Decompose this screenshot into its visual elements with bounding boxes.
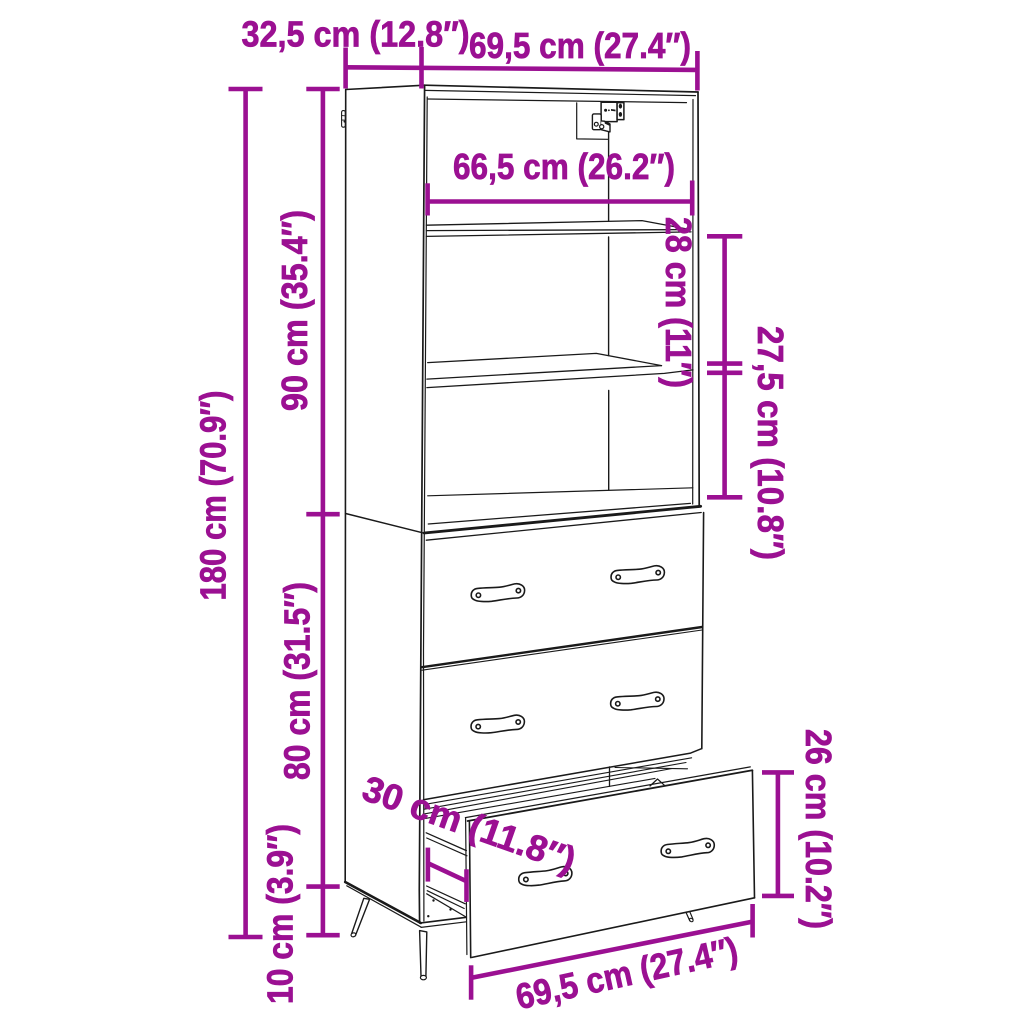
svg-text:32,5 cm (12.8″): 32,5 cm (12.8″): [242, 14, 470, 55]
svg-text:66,5 cm (26.2″): 66,5 cm (26.2″): [453, 146, 675, 187]
svg-text:80 cm (31.5″): 80 cm (31.5″): [277, 582, 318, 780]
svg-text:69,5 cm (27.4″): 69,5 cm (27.4″): [469, 25, 691, 66]
svg-text:28 cm (11″): 28 cm (11″): [658, 217, 699, 388]
svg-text:180 cm (70.9″): 180 cm (70.9″): [193, 391, 234, 601]
svg-text:10 cm (3.9″): 10 cm (3.9″): [260, 824, 301, 1004]
svg-text:27,5 cm (10.8″): 27,5 cm (10.8″): [750, 326, 791, 560]
svg-text:26 cm (10.2″): 26 cm (10.2″): [798, 729, 839, 929]
svg-text:90 cm (35.4″): 90 cm (35.4″): [274, 210, 315, 411]
